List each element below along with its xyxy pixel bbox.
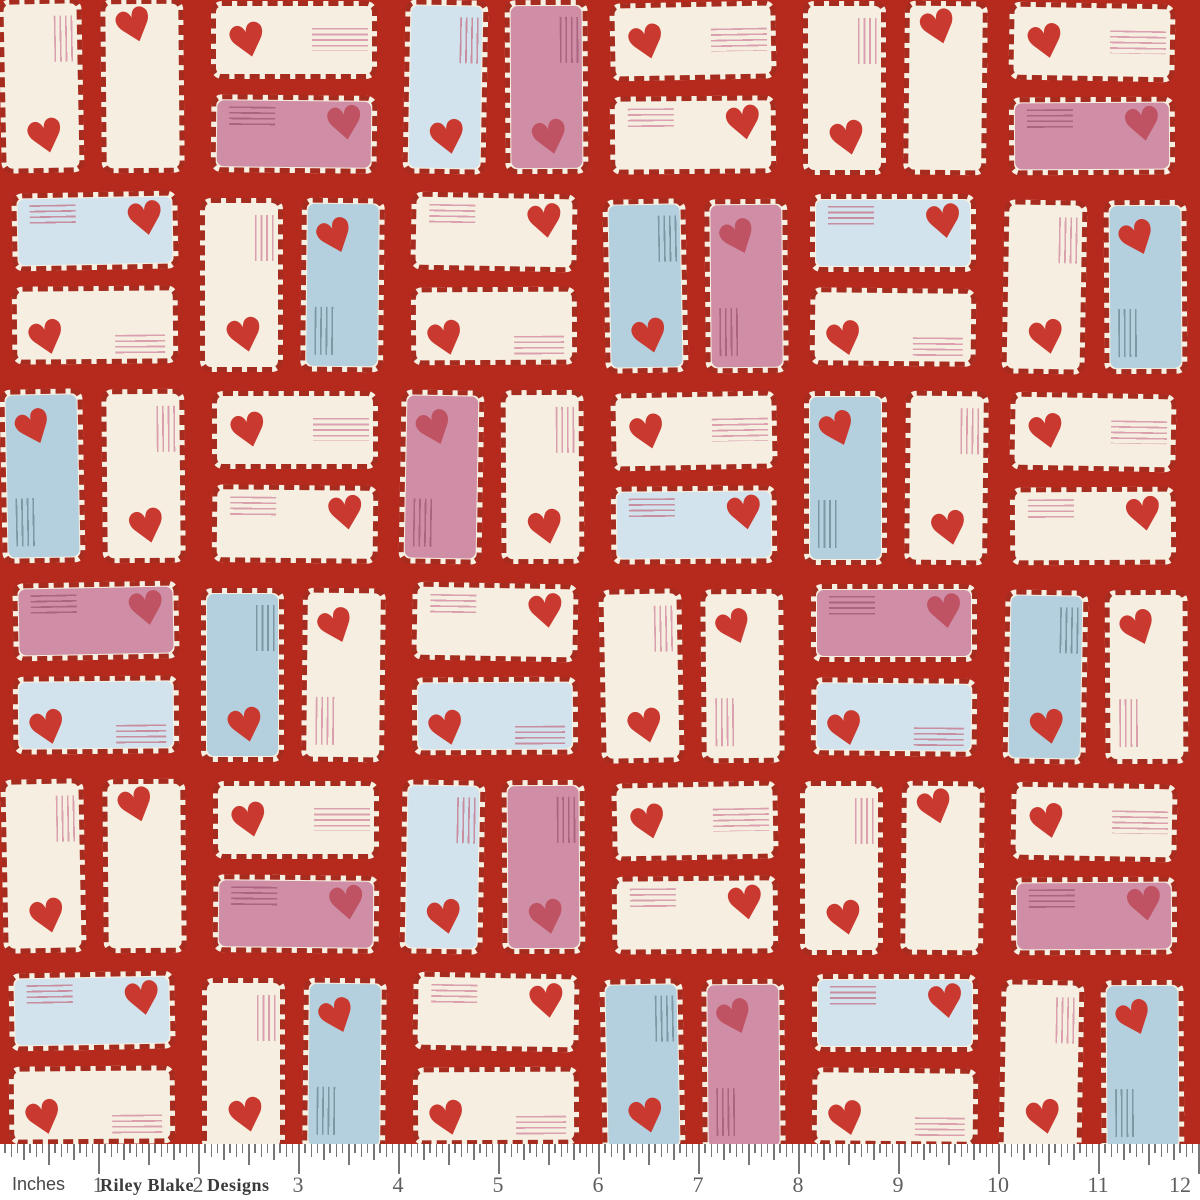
address-lines xyxy=(112,1114,162,1134)
heart-stamp-icon: ♥ xyxy=(323,879,371,927)
address-lines xyxy=(711,28,767,52)
address-lines xyxy=(515,726,565,746)
address-lines xyxy=(15,498,36,546)
heart-stamp-icon: ♥ xyxy=(523,978,571,1026)
envelope: ♥ xyxy=(0,0,85,174)
address-lines xyxy=(556,407,576,453)
envelope: ♥ xyxy=(301,588,386,763)
address-lines xyxy=(26,984,72,1005)
heart-stamp-icon: ♥ xyxy=(920,198,969,247)
address-lines xyxy=(557,797,577,843)
heart-stamp-icon: ♥ xyxy=(1121,880,1170,929)
address-lines xyxy=(431,984,477,1005)
address-lines xyxy=(115,334,165,354)
address-lines xyxy=(29,204,75,225)
envelope: ♥ xyxy=(1008,2,1175,83)
brand-designs-label: Designs xyxy=(207,1175,270,1196)
heart-stamp-icon: ♥ xyxy=(1119,100,1168,149)
address-lines xyxy=(156,406,176,452)
envelope: ♥ xyxy=(502,780,586,954)
address-lines xyxy=(429,204,475,225)
heart-stamp-icon: ♥ xyxy=(721,879,770,928)
address-lines xyxy=(658,215,679,261)
address-lines xyxy=(30,594,76,615)
envelope: ♥ xyxy=(0,778,86,954)
heart-stamp-icon: ♥ xyxy=(321,99,369,147)
ruler: Inches Riley Blake Designs 1234567891011… xyxy=(0,1144,1200,1200)
address-lines xyxy=(1055,997,1076,1043)
address-lines xyxy=(316,1087,337,1135)
envelope: ♥ xyxy=(1010,782,1177,863)
address-lines xyxy=(56,795,77,841)
address-lines xyxy=(855,798,875,844)
address-lines xyxy=(312,28,368,51)
envelope: ♥ xyxy=(811,584,977,662)
envelope: ♥ xyxy=(201,588,284,762)
envelope: ♥ xyxy=(903,1,988,176)
envelope: ♥ xyxy=(302,978,387,1144)
ruler-number: 9 xyxy=(880,1172,916,1198)
envelope: ♥ xyxy=(700,589,785,764)
address-lines xyxy=(913,337,963,358)
address-lines xyxy=(231,886,277,906)
heart-stamp-icon: ♥ xyxy=(420,893,470,943)
envelope: ♥ xyxy=(998,979,1084,1144)
envelope: ♥ xyxy=(200,198,283,372)
address-lines xyxy=(516,1116,566,1136)
address-lines xyxy=(54,15,75,61)
envelope: ♥ xyxy=(602,198,688,374)
address-lines xyxy=(257,995,277,1041)
fabric-swatch-photo: ♥♥♥♥♥♥♥♥♥♥♥♥♥♥♥♥♥♥♥♥♥♥♥♥♥♥♥♥♥♥♥♥♥♥♥♥♥♥♥♥… xyxy=(0,0,1200,1200)
envelope: ♥ xyxy=(1104,200,1188,374)
envelope: ♥ xyxy=(611,780,778,861)
heart-stamp-icon: ♥ xyxy=(122,584,171,633)
envelope: ♥ xyxy=(598,588,684,764)
address-lines xyxy=(315,697,336,745)
envelope: ♥ xyxy=(211,94,378,174)
envelope: ♥ xyxy=(811,677,978,757)
envelope: ♥ xyxy=(1011,877,1177,956)
address-lines xyxy=(413,499,434,547)
address-lines xyxy=(560,17,580,63)
heart-stamp-icon: ♥ xyxy=(1120,490,1169,539)
envelope: ♥ xyxy=(800,781,883,955)
address-lines xyxy=(1027,109,1073,129)
address-lines xyxy=(858,18,878,64)
ruler-number: 11 xyxy=(1080,1172,1116,1198)
envelope: ♥ xyxy=(213,781,379,859)
envelope: ♥ xyxy=(11,190,178,271)
address-lines xyxy=(1029,889,1075,909)
envelope: ♥ xyxy=(413,1067,579,1144)
envelope: ♥ xyxy=(501,390,585,564)
address-lines xyxy=(629,498,675,518)
address-lines xyxy=(514,336,564,356)
ruler-number: 3 xyxy=(280,1172,316,1198)
heart-stamp-icon: ♥ xyxy=(922,978,971,1027)
envelope: ♥ xyxy=(213,874,380,954)
address-lines xyxy=(230,496,276,516)
ruler-number: 5 xyxy=(480,1172,516,1198)
envelope: ♥ xyxy=(1002,589,1088,764)
envelope: ♥ xyxy=(804,391,887,565)
envelope: ♥ xyxy=(102,779,187,954)
envelope: ♥ xyxy=(505,0,589,174)
envelope: ♥ xyxy=(1001,199,1087,374)
heart-stamp-icon: ♥ xyxy=(1022,313,1072,363)
envelope: ♥ xyxy=(12,580,179,661)
ruler-units-label: Inches xyxy=(12,1174,65,1195)
heart-stamp-icon: ♥ xyxy=(1019,1093,1069,1143)
address-lines xyxy=(314,808,370,831)
heart-stamp-icon: ♥ xyxy=(719,99,768,148)
envelope: ♥ xyxy=(411,287,577,366)
ruler-number: 2 xyxy=(180,1172,216,1198)
envelope: ♥ xyxy=(610,390,777,471)
ruler-number: 4 xyxy=(380,1172,416,1198)
envelope: ♥ xyxy=(701,979,786,1144)
envelope: ♥ xyxy=(704,199,789,374)
address-lines xyxy=(314,307,335,355)
envelope: ♥ xyxy=(0,388,86,564)
envelope: ♥ xyxy=(1009,97,1175,176)
ruler-number: 10 xyxy=(980,1172,1016,1198)
envelope: ♥ xyxy=(411,582,578,663)
envelope: ♥ xyxy=(101,389,186,564)
heart-stamp-icon: ♥ xyxy=(121,194,170,243)
envelope: ♥ xyxy=(410,192,577,273)
address-lines xyxy=(628,108,674,128)
envelope: ♥ xyxy=(8,970,175,1051)
address-lines xyxy=(716,1088,736,1136)
heart-stamp-icon: ♥ xyxy=(322,489,370,537)
envelope: ♥ xyxy=(612,875,779,954)
envelope: ♥ xyxy=(212,391,378,469)
envelope: ♥ xyxy=(810,194,976,272)
address-lines xyxy=(255,215,275,261)
envelope: ♥ xyxy=(609,0,776,81)
envelope: ♥ xyxy=(1105,590,1189,764)
address-lines xyxy=(828,206,874,226)
ruler-number: 7 xyxy=(680,1172,716,1198)
address-lines xyxy=(712,418,768,442)
envelope: ♥ xyxy=(202,978,285,1144)
envelope: ♥ xyxy=(904,391,989,566)
envelope: ♥ xyxy=(810,287,977,367)
envelope: ♥ xyxy=(399,779,485,954)
address-lines xyxy=(1115,1089,1135,1137)
ruler-number: 12 xyxy=(1162,1172,1198,1198)
envelope: ♥ xyxy=(1009,392,1176,473)
heart-stamp-icon: ♥ xyxy=(720,489,769,538)
envelope: ♥ xyxy=(412,677,578,756)
address-lines xyxy=(915,1117,965,1138)
envelope: ♥ xyxy=(599,978,685,1144)
address-lines xyxy=(229,106,275,126)
envelope: ♥ xyxy=(402,0,488,175)
heart-stamp-icon: ♥ xyxy=(921,588,970,637)
address-lines xyxy=(1111,420,1167,444)
address-lines xyxy=(715,698,735,746)
heart-stamp-icon: ♥ xyxy=(1023,703,1073,753)
envelope: ♥ xyxy=(9,1065,176,1144)
envelope: ♥ xyxy=(900,781,985,956)
heart-stamp-icon: ♥ xyxy=(423,113,473,163)
envelope: ♥ xyxy=(611,485,778,564)
envelope: ♥ xyxy=(398,389,484,564)
ruler-number: 6 xyxy=(580,1172,616,1198)
address-lines xyxy=(459,17,480,63)
address-lines xyxy=(713,808,769,832)
envelope: ♥ xyxy=(1010,487,1176,566)
address-lines xyxy=(654,605,675,651)
envelope: ♥ xyxy=(212,484,379,564)
envelope: ♥ xyxy=(803,1,886,175)
heart-stamp-icon: ♥ xyxy=(118,974,167,1023)
address-lines xyxy=(655,995,676,1041)
envelope: ♥ xyxy=(211,1,377,79)
address-lines xyxy=(818,500,838,548)
address-lines xyxy=(1110,30,1166,54)
address-lines xyxy=(116,724,166,744)
envelope: ♥ xyxy=(12,285,179,364)
address-lines xyxy=(1119,699,1139,747)
heart-stamp-icon: ♥ xyxy=(521,198,569,246)
address-lines xyxy=(1028,499,1074,519)
envelope-pattern: ♥♥♥♥♥♥♥♥♥♥♥♥♥♥♥♥♥♥♥♥♥♥♥♥♥♥♥♥♥♥♥♥♥♥♥♥♥♥♥♥… xyxy=(0,0,1200,1144)
heart-stamp-icon: ♥ xyxy=(522,588,570,636)
ruler-number: 1 xyxy=(80,1172,116,1198)
address-lines xyxy=(830,986,876,1006)
address-lines xyxy=(1118,309,1138,357)
envelope: ♥ xyxy=(812,974,978,1052)
envelope: ♥ xyxy=(1101,980,1185,1144)
address-lines xyxy=(960,408,980,454)
envelope: ♥ xyxy=(812,1067,979,1144)
envelope: ♥ xyxy=(610,95,777,174)
envelope: ♥ xyxy=(300,198,385,373)
ruler-number: 8 xyxy=(780,1172,816,1198)
address-lines xyxy=(829,596,875,616)
address-lines xyxy=(1058,217,1079,263)
envelope: ♥ xyxy=(100,0,185,173)
address-lines xyxy=(1112,810,1168,834)
address-lines xyxy=(256,605,276,651)
address-lines xyxy=(313,418,369,441)
address-lines xyxy=(1059,607,1080,653)
address-lines xyxy=(430,594,476,615)
envelope: ♥ xyxy=(412,972,579,1053)
address-lines xyxy=(719,308,739,356)
envelope: ♥ xyxy=(13,675,180,754)
address-lines xyxy=(914,727,964,748)
address-lines xyxy=(630,888,676,908)
address-lines xyxy=(456,797,477,843)
